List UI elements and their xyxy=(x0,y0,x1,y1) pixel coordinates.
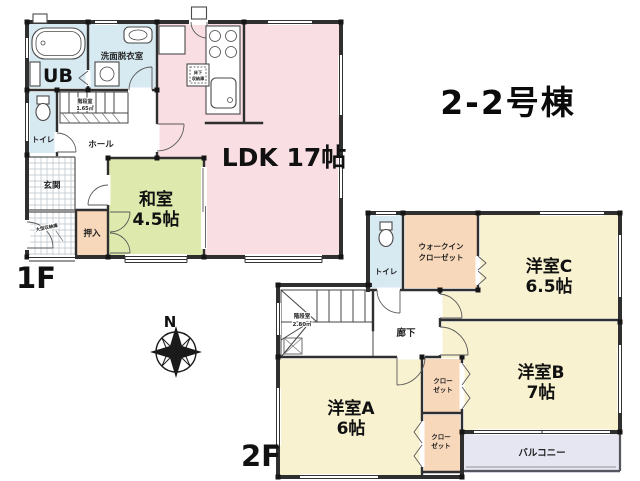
label-hall: ホール xyxy=(88,140,114,150)
label-stairs2f-area: 2.80㎡ xyxy=(292,320,312,328)
label-closet2-2: ゼット xyxy=(431,441,451,450)
label-room-c-name: 洋室C xyxy=(526,256,572,277)
refrigerator-space xyxy=(159,26,185,54)
label-closet1-2: ゼット xyxy=(433,385,453,394)
label-washitsu-area: 4.5帖 xyxy=(132,209,179,230)
floorplan-drawing: N 2-2号棟 1F 2F UB 洗面脱衣室 トイレ ホール 階段室 1.65㎡… xyxy=(0,0,640,481)
stairs-1f xyxy=(60,92,128,123)
label-room-c-area: 6.5帖 xyxy=(525,276,572,297)
label-rouka: 廊下 xyxy=(396,327,416,339)
bath-counter xyxy=(30,62,40,86)
floor1-label: 1F xyxy=(16,261,56,295)
label-room-b-name: 洋室B xyxy=(518,362,565,383)
label-wic-1: ウォークイン xyxy=(419,241,464,251)
label-stairs1f-name: 階段室 xyxy=(77,98,92,105)
label-closet2-1: クロー xyxy=(431,432,451,441)
toilet2f-tank xyxy=(380,222,392,230)
bathtub-icon xyxy=(32,28,85,59)
label-genkan: 玄関 xyxy=(43,180,60,191)
label-yukashita-2: 収納庫 xyxy=(192,75,205,82)
kitchen-back-door xyxy=(192,7,207,19)
room-wic xyxy=(405,215,478,288)
label-yukashita-1: 床下 xyxy=(194,69,203,76)
porch-tile xyxy=(29,212,75,255)
label-balcony: バルコニー xyxy=(518,447,565,459)
kitchen-sink xyxy=(211,78,236,108)
washing-machine-icon xyxy=(95,62,119,86)
toilet2f-door xyxy=(377,290,400,313)
label-wic-2: クローゼット xyxy=(419,252,464,262)
label-oshiire: 押入 xyxy=(83,228,101,239)
label-toilet-2f: トイレ xyxy=(375,267,398,276)
toilet1f-tank xyxy=(37,96,49,104)
toilet1f-door xyxy=(57,133,76,152)
label-stairs2f-name: 階段室 xyxy=(294,312,311,320)
compass-north-label: N xyxy=(164,313,177,331)
toilet2f-bowl xyxy=(379,230,393,247)
label-room-b-area: 7帖 xyxy=(527,382,556,403)
floorplan-page: N 2-2号棟 1F 2F UB 洗面脱衣室 トイレ ホール 階段室 1.65㎡… xyxy=(0,0,640,481)
label-senmen: 洗面脱衣室 xyxy=(101,51,144,62)
toilet1f-bowl xyxy=(36,104,50,121)
washbasin-icon xyxy=(124,27,152,43)
fixtures-2f xyxy=(379,222,393,247)
floor2-label: 2F xyxy=(241,439,281,473)
label-room-a-name: 洋室A xyxy=(327,398,375,419)
page-title: 2-2号棟 xyxy=(440,83,576,122)
label-washitsu-name: 和室 xyxy=(139,189,173,210)
label-toilet-1f: トイレ xyxy=(32,135,55,144)
label-closet1-1: クロー xyxy=(433,376,453,385)
compass-star xyxy=(150,326,202,378)
label-ldk: LDK 17帖 xyxy=(222,143,347,172)
compass: N xyxy=(150,313,202,378)
label-stairs1f-area: 1.65㎡ xyxy=(76,105,93,112)
label-ub: UB xyxy=(43,65,73,87)
label-room-a-area: 6帖 xyxy=(337,418,366,439)
washitsu-door xyxy=(88,185,108,205)
bath-vent-window xyxy=(33,14,47,23)
